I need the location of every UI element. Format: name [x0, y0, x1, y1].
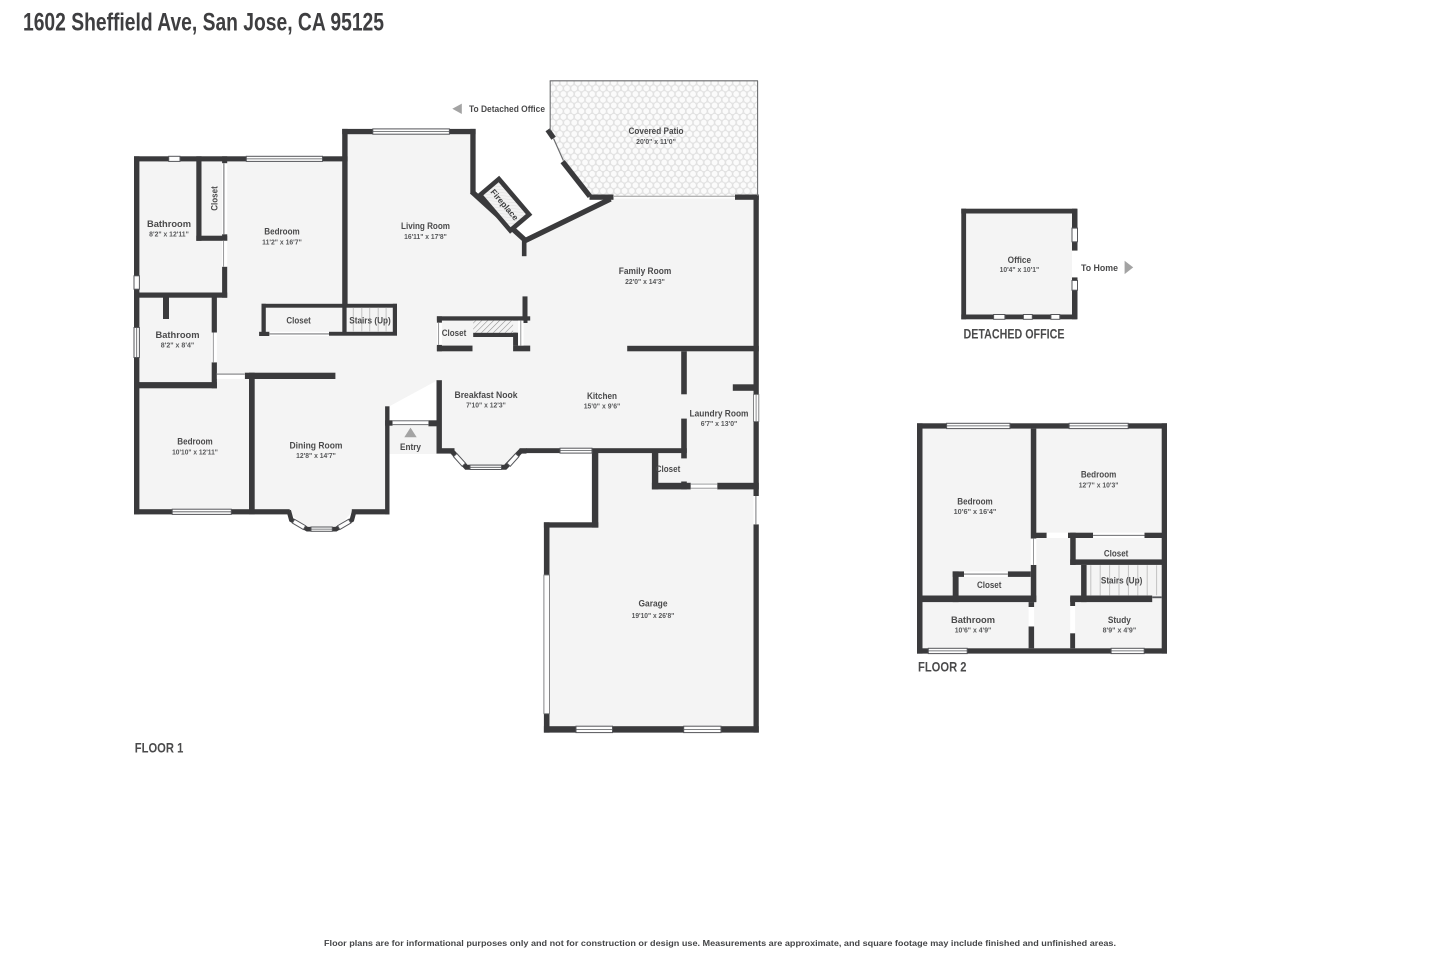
svg-text:12'7" x 10'3": 12'7" x 10'3" [1079, 480, 1119, 489]
svg-text:Bedroom: Bedroom [177, 437, 213, 447]
svg-text:10'6'' x 16'4": 10'6'' x 16'4" [954, 507, 997, 516]
svg-text:Entry: Entry [400, 442, 422, 452]
svg-text:Bedroom: Bedroom [1081, 469, 1117, 479]
svg-text:10'4" x 10'1": 10'4" x 10'1" [1000, 265, 1040, 274]
svg-text:19'10" x 26'8": 19'10" x 26'8" [632, 611, 675, 620]
svg-text:Bedroom: Bedroom [264, 227, 300, 237]
svg-text:Stairs (Up): Stairs (Up) [349, 315, 391, 325]
svg-text:Closet: Closet [442, 328, 467, 338]
svg-text:Dining Room: Dining Room [290, 440, 343, 450]
svg-text:Breakfast Nook: Breakfast Nook [455, 390, 519, 400]
svg-text:1602 Sheffield Ave, San Jose,: 1602 Sheffield Ave, San Jose, CA 95125 [23, 9, 384, 37]
svg-text:Bathroom: Bathroom [156, 330, 200, 340]
svg-text:Garage: Garage [639, 599, 668, 609]
svg-text:Closet: Closet [286, 315, 311, 325]
svg-text:11'2" x 16'7": 11'2" x 16'7" [262, 237, 302, 246]
svg-text:Closet: Closet [210, 186, 220, 211]
svg-text:Floor plans are for informatio: Floor plans are for informational purpos… [324, 938, 1116, 948]
svg-text:To Home: To Home [1081, 263, 1118, 273]
svg-text:Bathroom: Bathroom [147, 219, 191, 229]
svg-text:Family Room: Family Room [619, 266, 672, 276]
svg-text:16'11" x 17'8": 16'11" x 17'8" [404, 232, 447, 241]
svg-text:FLOOR 1: FLOOR 1 [135, 740, 184, 756]
svg-text:DETACHED OFFICE: DETACHED OFFICE [964, 326, 1065, 342]
svg-text:To Detached Office: To Detached Office [469, 104, 545, 114]
svg-text:Stairs (Up): Stairs (Up) [1101, 576, 1143, 586]
svg-text:8'2" x 12'11": 8'2" x 12'11" [149, 230, 189, 239]
svg-text:8'2" x 8'4": 8'2" x 8'4" [161, 340, 195, 349]
svg-text:20'0" x 11'0": 20'0" x 11'0" [636, 137, 676, 146]
svg-text:10'6" x 4'9": 10'6" x 4'9" [955, 625, 992, 634]
svg-text:Study: Study [1108, 615, 1132, 625]
svg-text:8'9" x 4'9": 8'9" x 4'9" [1103, 625, 1137, 634]
svg-text:Living Room: Living Room [401, 221, 450, 231]
svg-text:15'0" x 9'6": 15'0" x 9'6" [584, 402, 621, 411]
svg-text:Closet: Closet [977, 580, 1002, 590]
svg-text:Closet: Closet [656, 464, 681, 474]
svg-text:Kitchen: Kitchen [587, 391, 617, 401]
svg-text:12'8" x 14'7": 12'8" x 14'7" [296, 451, 336, 460]
svg-text:Laundry Room: Laundry Room [690, 408, 749, 418]
svg-text:7'10" x 12'3": 7'10" x 12'3" [466, 401, 506, 410]
svg-text:Closet: Closet [1104, 549, 1129, 559]
svg-text:22'0" x 14'3": 22'0" x 14'3" [625, 277, 665, 286]
svg-text:Office: Office [1008, 255, 1032, 265]
svg-text:Bathroom: Bathroom [951, 615, 995, 625]
svg-text:FLOOR 2: FLOOR 2 [918, 659, 967, 675]
svg-text:6'7" x 13'0": 6'7" x 13'0" [701, 419, 738, 428]
svg-text:Covered Patio: Covered Patio [629, 126, 684, 136]
svg-text:10'10" x 12'11": 10'10" x 12'11" [172, 447, 218, 456]
svg-text:Bedroom: Bedroom [957, 496, 993, 506]
